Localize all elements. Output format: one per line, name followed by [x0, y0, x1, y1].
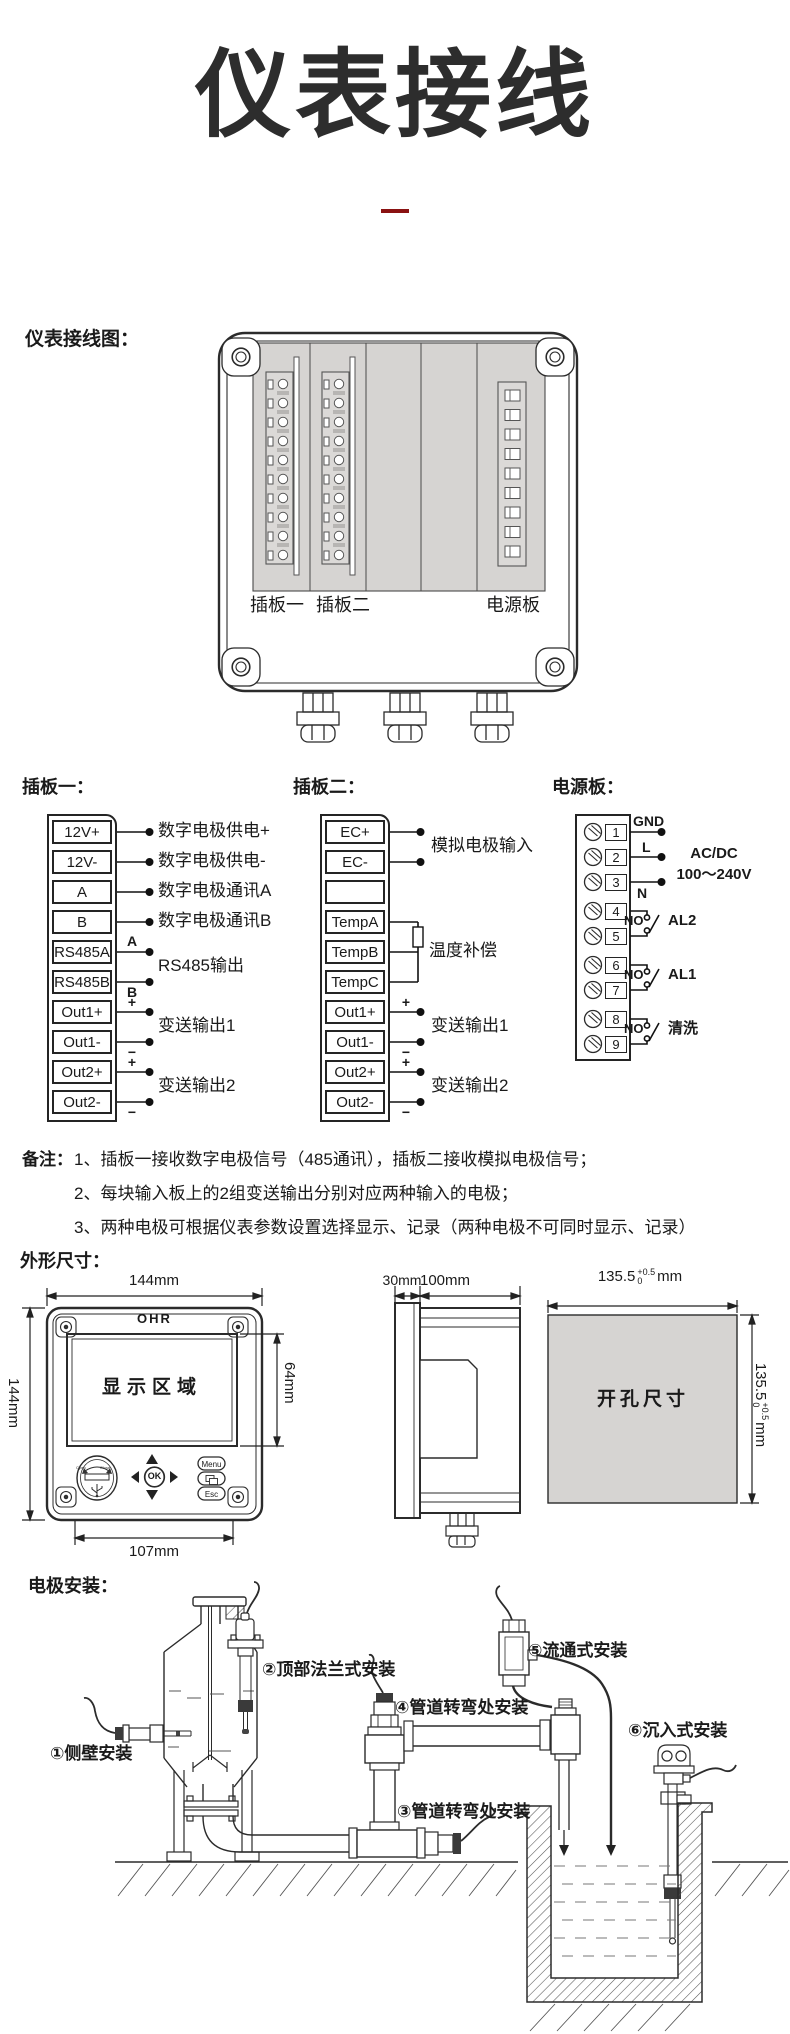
board1-title: 插板一： — [22, 777, 94, 799]
screw-icon — [585, 824, 602, 1053]
terminal-cell: A — [52, 880, 112, 904]
terminal-cell: RS485A — [52, 940, 112, 964]
wire-desc: 变送输出2 — [158, 1076, 235, 1096]
terminal-cell: 12V- — [52, 850, 112, 874]
page-title: 仪表接线 — [0, 38, 790, 153]
install-item-2: ②顶部法兰式安装 — [262, 1660, 395, 1680]
terminal-cell: Out1- — [52, 1030, 112, 1054]
install-item-4: ④管道转弯处安装 — [395, 1698, 528, 1718]
install-item-1: ①侧壁安装 — [50, 1744, 132, 1764]
power-wires — [630, 829, 665, 1044]
cutout-dim-value: 135.5 — [598, 1268, 636, 1286]
agitator-paddle — [193, 1755, 227, 1772]
wire-desc: RS485输出 — [158, 956, 244, 976]
no-contact-label: NO — [624, 1021, 644, 1037]
tolerance-lower: 0 — [637, 1277, 655, 1286]
supply-voltage-line1: AC/DC — [664, 845, 764, 863]
note-line: 3、两种电极可根据仪表参数设置选择显示、记录（两种电极不可同时显示、记录） — [74, 1218, 695, 1238]
cutout-dim-right: 135.5+0.50mm — [751, 1340, 769, 1470]
cutout-dim-value: 135.5 — [751, 1363, 769, 1401]
cutout-label: 开孔尺寸 — [568, 1388, 718, 1411]
ok-button: OK — [144, 1471, 165, 1482]
wire-mark-plus: + — [399, 994, 413, 1011]
side-gland-icon — [446, 1513, 478, 1547]
menu-button: Menu — [198, 1460, 225, 1470]
no-contact-label: NO — [624, 913, 644, 929]
dim-screen-label: 64mm — [280, 1362, 298, 1404]
power-strip — [498, 382, 526, 566]
wire-desc: 数字电极供电- — [158, 851, 266, 871]
no-contact-label: NO — [624, 967, 644, 983]
usb-close-label: Close — [100, 1466, 110, 1471]
al1-label: AL1 — [668, 966, 696, 984]
board2-title: 插板二： — [293, 777, 365, 799]
dim-bottom-label: 107mm — [114, 1543, 194, 1561]
terminal-cell: Out2- — [52, 1090, 112, 1114]
usb-open-label: Open — [76, 1466, 86, 1471]
terminal-cell: Out1+ — [325, 1000, 385, 1024]
tolerance-upper: +0.5 — [760, 1402, 769, 1420]
dimensions-label: 外形尺寸： — [20, 1251, 110, 1273]
terminal-cell: Out2+ — [325, 1060, 385, 1084]
wire-mark-plus: + — [125, 1054, 139, 1071]
terminal-number: 9 — [605, 1036, 627, 1053]
al2-label: AL2 — [668, 912, 696, 930]
terminal-strip-1 — [266, 357, 299, 575]
terminal-cell: Out1- — [325, 1030, 385, 1054]
cable-gland-icon — [297, 693, 513, 742]
esc-button: Esc — [198, 1490, 225, 1500]
cable — [247, 1582, 259, 1613]
tolerance-lower: 0 — [751, 1402, 760, 1420]
terminal-number: 1 — [605, 824, 627, 841]
terminal-cell — [325, 880, 385, 904]
device-slot1-label: 插板一 — [250, 595, 304, 617]
cutout-dim-top: 135.5+0.50mm — [575, 1268, 705, 1286]
pit — [518, 1803, 712, 2002]
page: 仪表接线 仪表接线图： 插板一 插板二 电源板 插板一： 12V+ 12V- A… — [0, 0, 790, 2034]
wire-desc: 变送输出2 — [431, 1076, 508, 1096]
terminal-cell: B — [52, 910, 112, 934]
wire-mark-plus: + — [399, 1054, 413, 1071]
wash-label: 清洗 — [668, 1020, 698, 1038]
live-label: L — [642, 839, 651, 856]
terminal-cell: RS485B — [52, 970, 112, 994]
water-dashes — [554, 1866, 676, 1956]
wire-desc: 温度补偿 — [429, 941, 497, 961]
cable — [690, 1765, 736, 1778]
install-item-5: ⑤流通式安装 — [528, 1641, 627, 1661]
board1-terminal-block: 12V+ 12V- A B RS485A RS485B Out1+ Out1- … — [47, 814, 117, 1122]
terminal-cell: TempA — [325, 910, 385, 934]
neutral-label: N — [637, 885, 647, 902]
supply-voltage-line2: 100～240V — [659, 866, 769, 884]
device-rear-view — [219, 333, 577, 742]
wire-desc: 数字电极通讯A — [158, 881, 271, 901]
tank-outlet-flange — [184, 1796, 238, 1821]
wire-mark-a: A — [125, 933, 139, 950]
cutout-dim-unit: mm — [751, 1422, 769, 1447]
install-label: 电极安装： — [28, 1576, 118, 1598]
install-item-3: ③管道转弯处安装 — [397, 1802, 530, 1822]
terminal-cell: Out1+ — [52, 1000, 112, 1024]
tank-legs — [174, 1770, 252, 1852]
terminal-strip-2 — [322, 357, 355, 575]
wire-mark-minus: − — [125, 1104, 139, 1121]
device-power-label: 电源板 — [486, 595, 540, 617]
wire-mark-plus: + — [125, 994, 139, 1011]
terminal-cell: Out2- — [325, 1090, 385, 1114]
terminal-number: 7 — [605, 982, 627, 999]
wire-mark-minus: − — [399, 1104, 413, 1121]
cutout-dim-unit: mm — [657, 1268, 682, 1286]
device-slot2-label: 插板二 — [316, 595, 370, 617]
dim-width-label: 144mm — [114, 1272, 194, 1290]
terminal-cell: TempB — [325, 940, 385, 964]
wire-desc: 变送输出1 — [158, 1016, 235, 1036]
terminal-cell: 12V+ — [52, 820, 112, 844]
tank — [164, 1597, 358, 1861]
terminal-number: 5 — [605, 928, 627, 945]
board2-terminal-block: EC+ EC- TempA TempB TempC Out1+ Out1- Ou… — [320, 814, 390, 1122]
wire-desc: 数字电极供电+ — [158, 821, 270, 841]
electrode-side-wall — [84, 1698, 191, 1742]
wire-desc: 变送输出1 — [431, 1016, 508, 1036]
gnd-label: GND — [633, 813, 664, 830]
thermistor-icon — [413, 927, 423, 947]
note-line: 1、插板一接收数字电极信号（485通讯），插板二接收模拟电极信号； — [74, 1150, 596, 1170]
terminal-cell: EC+ — [325, 820, 385, 844]
notes-label: 备注： — [22, 1150, 73, 1170]
dim-height-label: 144mm — [4, 1378, 22, 1428]
side-view — [395, 1286, 520, 1547]
display-area-label: 显示区域 — [72, 1376, 232, 1399]
wire-desc: 模拟电极输入 — [431, 836, 533, 856]
wire-desc: 数字电极通讯B — [158, 911, 271, 931]
wiring-diagram-label: 仪表接线图： — [25, 329, 139, 352]
brand-logo: OHR — [122, 1311, 187, 1327]
power-title: 电源板： — [552, 777, 624, 799]
cable — [496, 1586, 512, 1620]
agitator-shaft — [209, 1606, 212, 1760]
note-line: 2、每块输入板上的2组变送输出分别对应两种输入的电极； — [74, 1184, 518, 1204]
red-accent-dash — [381, 209, 409, 213]
cable — [84, 1698, 115, 1733]
terminal-cell: EC- — [325, 850, 385, 874]
terminal-cell: TempC — [325, 970, 385, 994]
dim-body-label: 100mm — [405, 1272, 485, 1290]
terminal-number: 3 — [605, 874, 627, 891]
install-item-6: ⑥沉入式安装 — [628, 1721, 727, 1741]
terminal-number: 2 — [605, 849, 627, 866]
terminal-cell: Out2+ — [52, 1060, 112, 1084]
